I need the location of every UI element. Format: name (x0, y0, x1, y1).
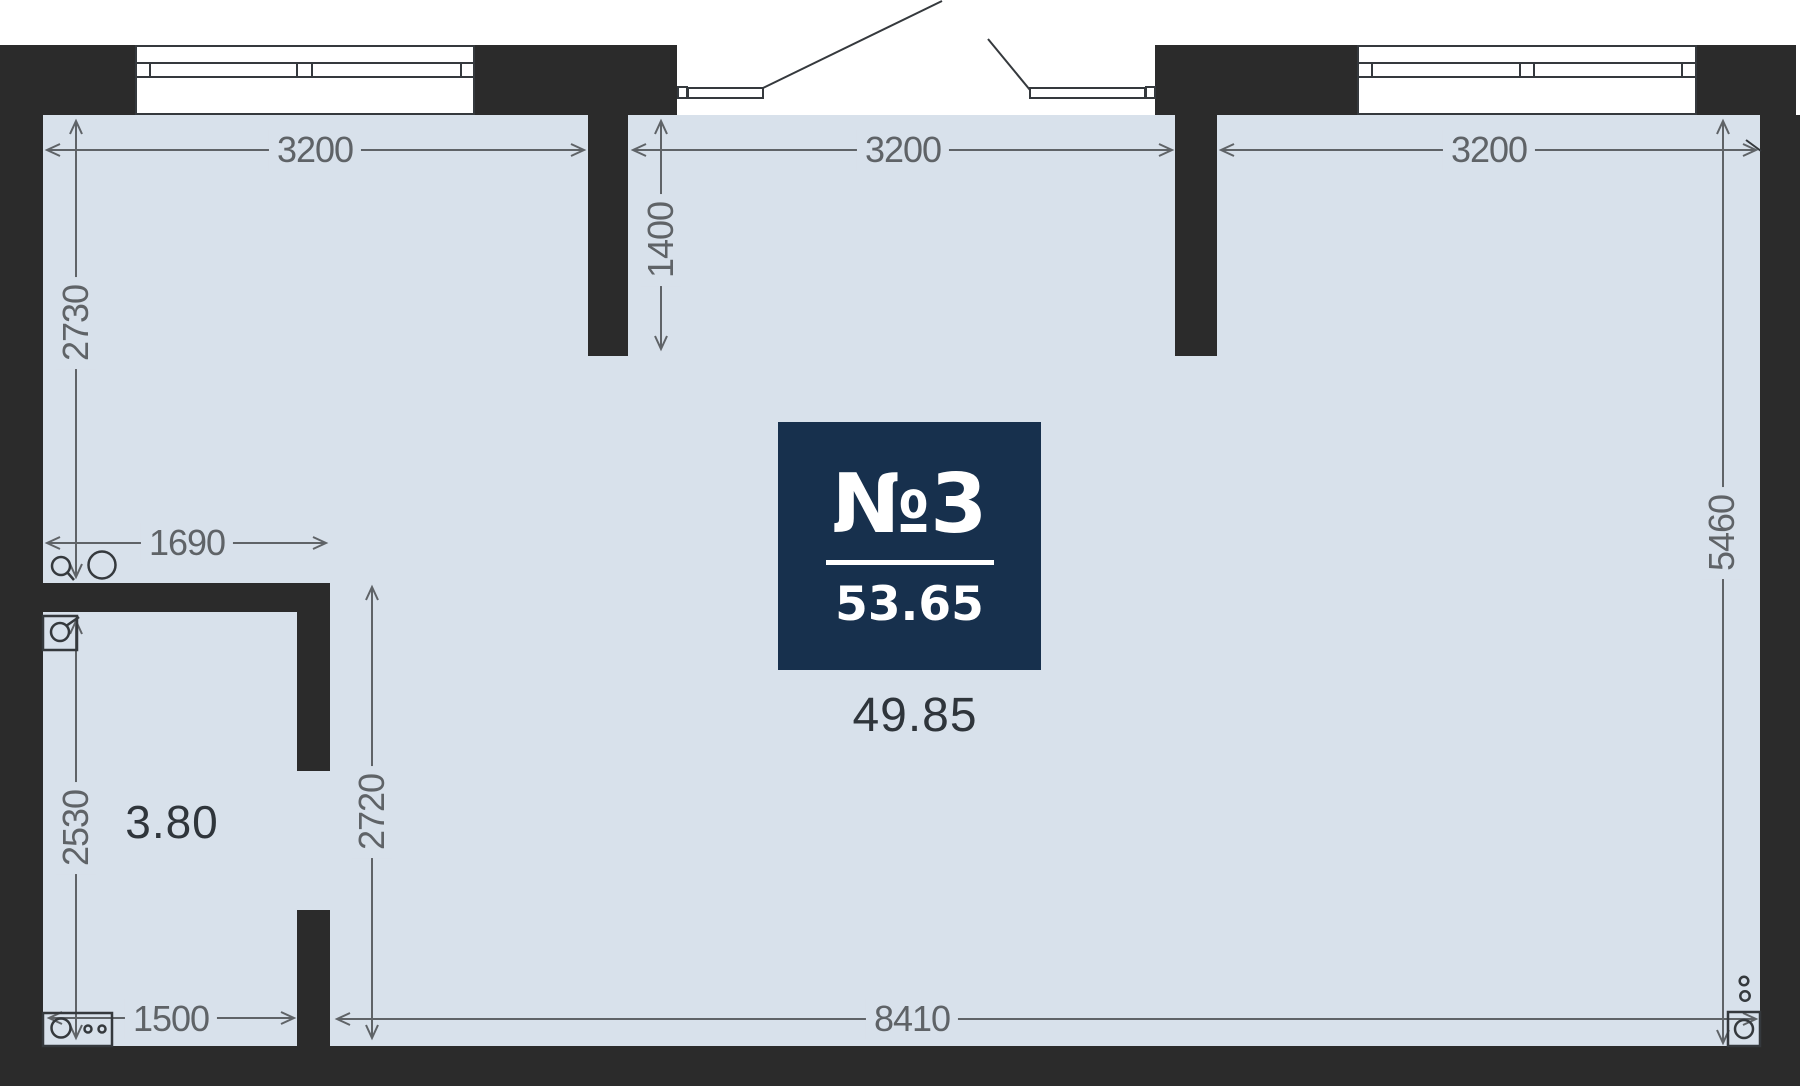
bathroom-area: 3.80 (125, 799, 219, 845)
bathroom-wall-right-upper (297, 612, 330, 771)
bathroom-wall-right-lower (297, 910, 330, 1046)
door-opening (677, 45, 1155, 115)
unit-number: №3 (832, 464, 988, 546)
wall-bottom (0, 1046, 1800, 1086)
door-leaf-right (1029, 87, 1146, 99)
window-right (1357, 45, 1697, 115)
dim-left-lower: 2530 (56, 782, 96, 874)
dim-room-height: 2720 (352, 766, 392, 858)
main-room-area: 49.85 (852, 692, 977, 740)
wall-stub-left (588, 115, 628, 356)
dim-stub-depth: 1400 (641, 194, 681, 286)
dim-top-right: 3200 (1443, 130, 1535, 170)
dim-top-middle: 3200 (857, 130, 949, 170)
dim-right-side: 5460 (1702, 487, 1742, 579)
dim-bathroom-width: 1690 (141, 523, 233, 563)
unit-badge[interactable]: №3 53.65 (778, 422, 1041, 670)
window-left (135, 45, 475, 115)
floor-plan: 3200 3200 3200 1400 2730 1690 2530 2720 … (0, 0, 1800, 1086)
badge-divider (826, 560, 994, 565)
wall-left (0, 45, 43, 1086)
wall-stub-right (1175, 115, 1217, 356)
unit-total-area: 53.65 (835, 581, 984, 628)
dim-top-left: 3200 (269, 130, 361, 170)
dim-bottom-left: 1500 (125, 999, 217, 1039)
bathroom-wall-top (0, 583, 330, 612)
door-casing-right (1145, 86, 1156, 99)
dim-left-upper: 2730 (56, 277, 96, 369)
dim-bottom-main: 8410 (866, 999, 958, 1039)
door-leaf-left (687, 87, 764, 99)
wall-right (1760, 115, 1800, 1086)
